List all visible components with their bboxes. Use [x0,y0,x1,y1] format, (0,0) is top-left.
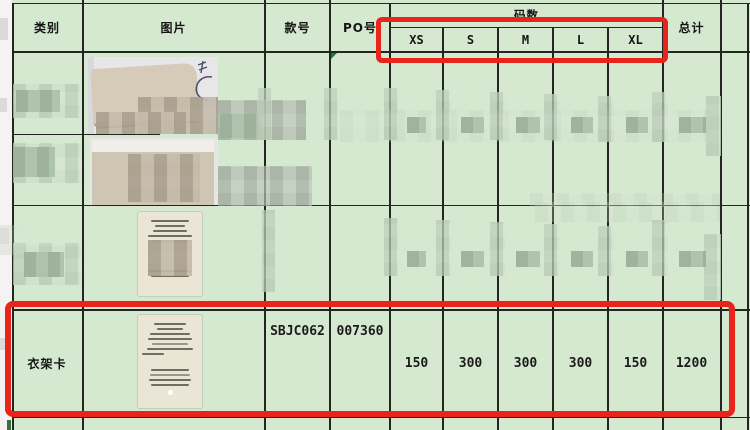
strip-fragment [0,18,8,40]
redaction-patch [128,154,200,202]
highlight-box-hanger-card-row[interactable] [5,301,735,417]
redaction-patch [384,88,398,140]
redaction-patch [490,222,505,276]
redaction-patch [571,251,593,267]
redaction-patch [218,166,312,206]
spreadsheet-screenshot: 类别 图片 款号 PO号 码数 XS S M L XL 总计 衣架卡 SBJC0… [0,0,750,430]
redaction-patch [544,94,559,140]
redaction-patch [384,218,398,276]
redaction-patch [706,96,721,156]
redaction-patch [258,88,272,140]
redaction-patch [407,117,426,133]
header-cell-style-no[interactable]: 款号 [265,3,330,52]
cell-error-flag-icon [331,53,337,59]
redaction-patch [148,240,192,276]
redaction-patch [704,234,721,300]
header-cell-picture[interactable]: 图片 [82,3,265,52]
redaction-patch [16,90,60,112]
redaction-patch [96,112,186,134]
redaction-patch [461,251,484,267]
header-cell-total[interactable]: 总计 [663,3,720,52]
strip-fragment [0,98,7,112]
redaction-patch [571,117,593,133]
header-cell-category[interactable]: 类别 [12,3,82,52]
redaction-patch [626,251,648,267]
redaction-patch [436,90,451,140]
grid-line [747,3,749,430]
grid-line [12,417,750,418]
redaction-patch [407,251,426,267]
redaction-patch [461,117,484,133]
redaction-patch [598,96,614,142]
redaction-patch [24,252,64,277]
redaction-patch [679,251,706,267]
redaction-patch [652,220,668,276]
redaction-patch [626,117,648,133]
redaction-patch [535,202,720,222]
redaction-patch [436,220,451,276]
redaction-patch [220,114,262,138]
grid-line [12,3,750,4]
redaction-patch [13,147,55,177]
redaction-patch [679,117,706,133]
highlight-box-size-columns[interactable] [376,17,668,63]
redaction-patch [544,224,559,276]
redaction-patch [0,225,24,255]
redaction-patch [516,251,540,267]
redaction-patch [324,88,338,140]
redaction-patch [516,117,540,133]
redaction-patch [652,92,668,142]
green-cell-fragment [7,420,11,430]
grid-line [12,134,160,135]
redaction-patch [490,92,505,140]
redaction-patch [598,226,614,276]
redaction-patch [262,210,275,292]
